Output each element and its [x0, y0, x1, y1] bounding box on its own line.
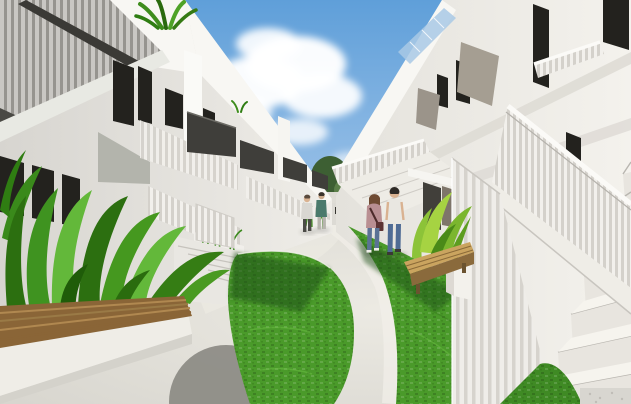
- taupe-panel-small: [416, 88, 440, 130]
- render-canvas: [0, 0, 631, 404]
- architectural-render: [0, 0, 631, 404]
- bench-leg: [416, 284, 420, 294]
- bench-leg: [462, 263, 466, 273]
- paving-dots: [580, 388, 631, 404]
